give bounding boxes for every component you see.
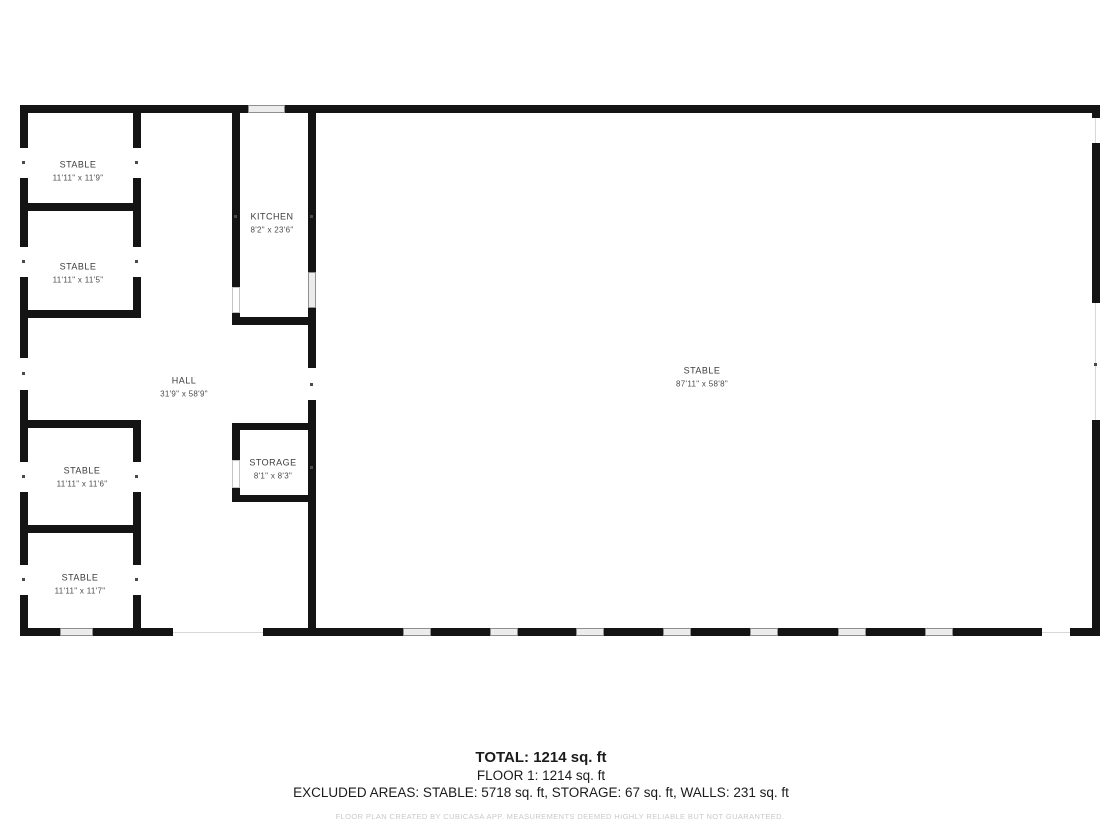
wall: [20, 525, 141, 533]
opening-line: [173, 632, 263, 633]
room-dims: 87'11" x 58'8": [676, 380, 728, 389]
wall: [308, 400, 316, 636]
room-label-stable-1: STABLE 11'11" x 11'9": [53, 160, 104, 183]
room-dims: 11'11" x 11'6": [57, 480, 108, 489]
opening-tick: [234, 215, 237, 218]
wall: [232, 423, 316, 430]
room-label-stable-3: STABLE 11'11" x 11'6": [57, 466, 108, 489]
opening-tick: [1094, 363, 1097, 366]
opening-line: [1042, 632, 1070, 633]
room-dims: 8'2" x 23'6": [250, 226, 293, 235]
window: [490, 628, 518, 636]
opening-tick: [135, 578, 138, 581]
door-opening: [232, 460, 240, 488]
room-dims: 11'11" x 11'7": [55, 587, 106, 596]
excluded-areas-text: EXCLUDED AREAS: STABLE: 5718 sq. ft, STO…: [0, 784, 1082, 801]
opening-tick: [135, 260, 138, 263]
window: [308, 272, 316, 308]
window: [248, 105, 285, 113]
room-name: HALL: [160, 376, 208, 386]
opening-line: [1095, 303, 1096, 420]
opening-tick: [310, 215, 313, 218]
room-name: STORAGE: [249, 458, 296, 468]
window: [838, 628, 866, 636]
floor-plan-page: STABLE 11'11" x 11'9" STABLE 11'11" x 11…: [0, 0, 1120, 840]
wall: [20, 105, 1100, 113]
opening-tick: [22, 161, 25, 164]
room-label-stable-2: STABLE 11'11" x 11'5": [53, 262, 104, 285]
wall: [232, 317, 316, 325]
total-area-text: TOTAL: 1214 sq. ft: [0, 748, 1082, 767]
room-dims: 8'1" x 8'3": [249, 472, 296, 481]
disclaimer-text: FLOOR PLAN CREATED BY CUBICASA APP. MEAS…: [0, 812, 1120, 821]
room-dims: 31'9" x 58'9": [160, 390, 208, 399]
room-name: STABLE: [53, 160, 104, 170]
room-dims: 11'11" x 11'5": [53, 276, 104, 285]
wall: [133, 113, 141, 148]
room-label-storage: STORAGE 8'1" x 8'3": [249, 458, 296, 481]
room-name: STABLE: [55, 573, 106, 583]
window: [750, 628, 778, 636]
window: [663, 628, 691, 636]
wall: [232, 495, 316, 502]
wall: [1092, 105, 1100, 118]
wall: [20, 420, 141, 428]
wall: [133, 595, 141, 628]
wall: [20, 178, 28, 247]
floor-area-text: FLOOR 1: 1214 sq. ft: [0, 767, 1082, 784]
opening-line: [1095, 118, 1096, 143]
opening-tick: [22, 475, 25, 478]
window: [60, 628, 93, 636]
wall: [1092, 143, 1100, 303]
room-label-stable-large: STABLE 87'11" x 58'8": [676, 366, 728, 389]
door-opening: [232, 287, 240, 313]
wall: [20, 105, 28, 148]
opening-tick: [135, 475, 138, 478]
wall: [20, 628, 173, 636]
wall: [20, 310, 141, 318]
wall: [308, 105, 316, 368]
room-name: STABLE: [676, 366, 728, 376]
window: [403, 628, 431, 636]
opening-tick: [310, 466, 313, 469]
room-name: STABLE: [53, 262, 104, 272]
opening-tick: [22, 372, 25, 375]
room-name: KITCHEN: [250, 212, 293, 222]
opening-tick: [135, 161, 138, 164]
room-name: STABLE: [57, 466, 108, 476]
window: [925, 628, 953, 636]
room-label-kitchen: KITCHEN 8'2" x 23'6": [250, 212, 293, 235]
opening-tick: [22, 578, 25, 581]
opening-tick: [310, 383, 313, 386]
wall: [20, 203, 141, 211]
wall: [232, 113, 240, 287]
room-label-hall: HALL 31'9" x 58'9": [160, 376, 208, 399]
room-dims: 11'11" x 11'9": [53, 174, 104, 183]
summary-block: TOTAL: 1214 sq. ft FLOOR 1: 1214 sq. ft …: [0, 748, 1082, 801]
room-label-stable-4: STABLE 11'11" x 11'7": [55, 573, 106, 596]
window: [576, 628, 604, 636]
wall: [1092, 420, 1100, 636]
opening-tick: [22, 260, 25, 263]
wall: [133, 178, 141, 247]
